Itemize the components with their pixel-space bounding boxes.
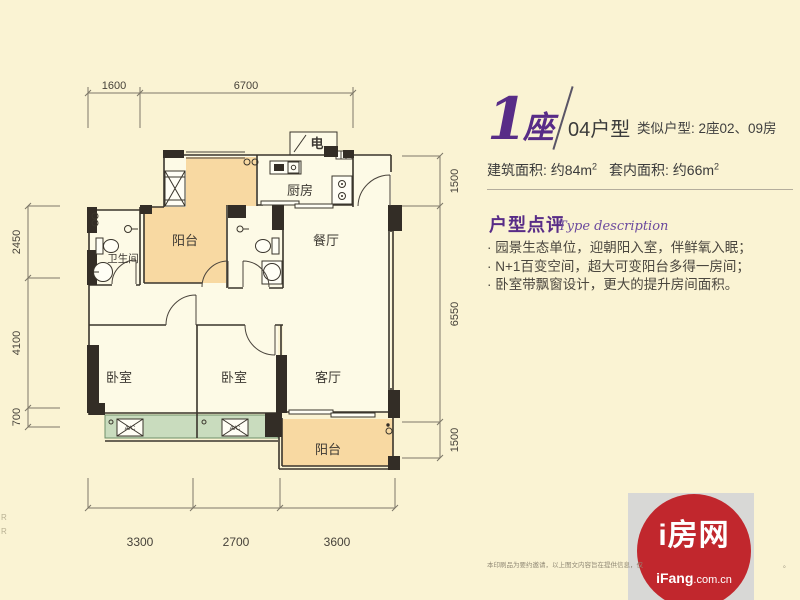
label-ac-1: A/C xyxy=(125,425,136,432)
dim-right-1500b: 1500 xyxy=(449,428,461,452)
flyer-page: 1600 6700 3300 2700 3600 2450 4100 700 1… xyxy=(0,0,800,600)
ifang-site-bold: iFang xyxy=(656,570,693,586)
similar-units: 类似户型: 2座02、09房 xyxy=(637,117,777,137)
label-bathroom: 卫生间 xyxy=(107,252,139,265)
section-divider xyxy=(487,189,793,190)
dim-bottom-3600: 3600 xyxy=(324,535,351,549)
area-built-text: 建筑面积: 约84m xyxy=(487,162,592,178)
sliding-door-kitchen xyxy=(261,201,299,205)
label-kitchen: 厨房 xyxy=(287,183,313,198)
area-inner: 套内面积: 约66m2 xyxy=(609,160,719,180)
dim-top-1600: 1600 xyxy=(102,80,126,92)
area-inner-text: 套内面积: 约66m xyxy=(609,162,714,178)
ifang-logo-name: i房网 xyxy=(637,510,751,554)
area-built-sup: 2 xyxy=(592,161,597,171)
ifang-logo-site: iFang.com.cn xyxy=(637,570,751,586)
label-ac-2: A/C xyxy=(230,425,241,432)
building-number: 1 xyxy=(487,90,527,148)
label-living: 客厅 xyxy=(315,370,341,385)
dim-bottom-3300: 3300 xyxy=(127,535,154,549)
disclaimer-tail: 。 xyxy=(783,560,790,570)
toilet xyxy=(272,238,279,254)
label-electric: 电 xyxy=(310,136,323,151)
ifang-logo: i房网 iFang.com.cn xyxy=(628,493,754,600)
review-bullets: · 园景生态单位，迎朝阳入室，伴鲜氧入眠； · N+1百变空间，超大可变阳台多得… xyxy=(487,239,799,295)
unit-code: 04户型 xyxy=(568,113,630,142)
label-balcony-bottom: 阳台 xyxy=(315,442,341,457)
dim-left-700: 700 xyxy=(11,408,23,426)
dim-top-6700: 6700 xyxy=(234,80,258,92)
label-bedroom-1: 卧室 xyxy=(106,370,132,385)
label-dining: 餐厅 xyxy=(313,233,339,248)
toilet xyxy=(96,238,103,254)
review-title: 户型点评 xyxy=(489,211,565,237)
review-bullet: · 园景生态单位，迎朝阳入室，伴鲜氧入眠； xyxy=(487,239,799,258)
label-bedroom-2: 卧室 xyxy=(221,370,247,385)
review-bullet: · 卧室带飘窗设计，更大的提升房间面积。 xyxy=(487,276,799,295)
sliding-door-living xyxy=(289,410,333,414)
area-built: 建筑面积: 约84m2 xyxy=(487,160,597,180)
review-subtitle: Type description xyxy=(558,219,668,234)
ifang-site-rest: .com.cn xyxy=(693,574,732,586)
left-edge-artifact: R R xyxy=(1,511,7,539)
dim-bottom-2700: 2700 xyxy=(223,535,250,549)
dim-right-6550: 6550 xyxy=(449,302,461,326)
disclaimer-text: 本印刷品为要约邀请，以上图文内容旨在提供信息，仅 xyxy=(487,559,643,569)
ifang-logo-circle: i房网 iFang.com.cn xyxy=(637,494,751,600)
floorplan-svg: 1600 6700 3300 2700 3600 2450 4100 700 1… xyxy=(0,0,478,600)
dim-left-4100: 4100 xyxy=(11,331,23,355)
review-bullet: · N+1百变空间，超大可变阳台多得一房间； xyxy=(487,258,799,277)
dim-right-1500a: 1500 xyxy=(449,169,461,193)
label-balcony-top: 阳台 xyxy=(172,233,198,248)
dim-left-2450: 2450 xyxy=(11,230,23,254)
building-word: 座 xyxy=(523,102,554,147)
area-inner-sup: 2 xyxy=(714,161,719,171)
